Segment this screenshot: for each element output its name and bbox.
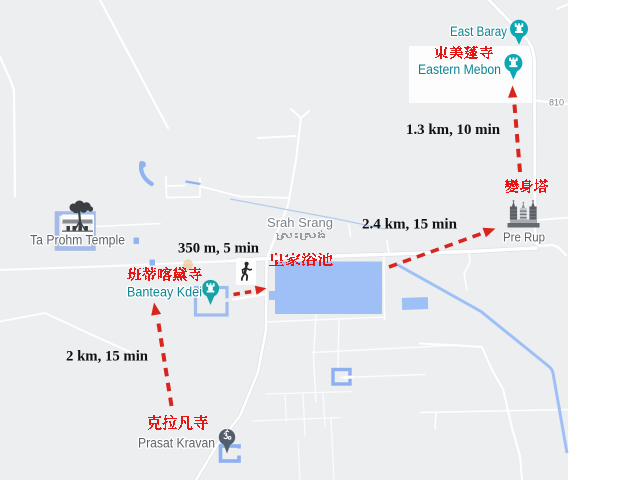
- svg-text:Prasat Kravan: Prasat Kravan: [138, 436, 215, 451]
- svg-text:East Baray: East Baray: [450, 24, 507, 39]
- svg-text:810: 810: [549, 98, 564, 108]
- svg-text:1.3 km, 10 min: 1.3 km, 10 min: [406, 122, 501, 138]
- svg-text:Srah Srang: Srah Srang: [267, 215, 333, 230]
- svg-text:Ta Prohm Temple: Ta Prohm Temple: [30, 233, 125, 248]
- svg-text:2 km, 15 min: 2 km, 15 min: [66, 349, 149, 365]
- svg-text:2.4 km, 15 min: 2.4 km, 15 min: [362, 217, 458, 233]
- svg-text:Pre Rup: Pre Rup: [503, 230, 545, 245]
- svg-text:Eastern Mebon: Eastern Mebon: [418, 62, 501, 77]
- svg-text:350 m, 5 min: 350 m, 5 min: [178, 241, 260, 257]
- svg-text:Banteay Kdei: Banteay Kdei: [127, 285, 202, 300]
